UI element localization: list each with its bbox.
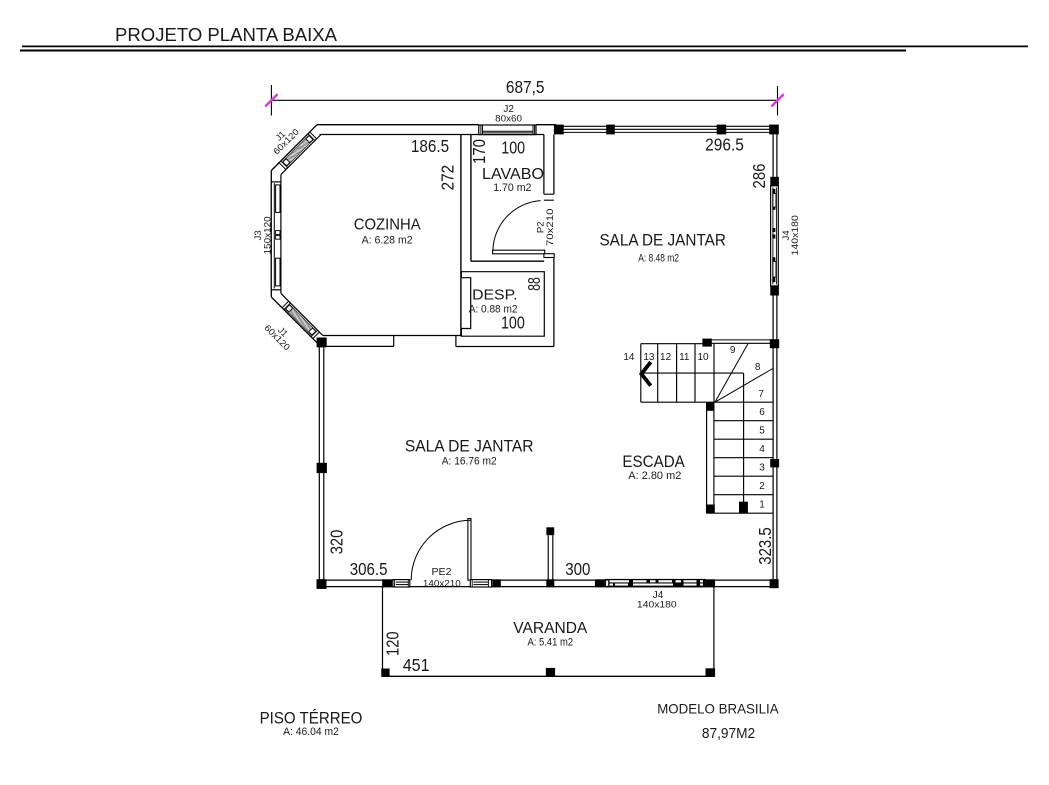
svg-text:120: 120 <box>383 631 403 656</box>
svg-text:A: 16.76 m2: A: 16.76 m2 <box>442 456 497 468</box>
svg-text:320: 320 <box>327 530 347 555</box>
svg-text:1: 1 <box>759 500 765 511</box>
svg-text:VARANDA: VARANDA <box>513 620 587 637</box>
svg-text:12: 12 <box>660 352 672 363</box>
svg-text:1.70 m2: 1.70 m2 <box>493 182 531 194</box>
svg-text:SALA DE JANTAR: SALA DE JANTAR <box>599 231 726 249</box>
svg-text:A: 46.04 m2: A: 46.04 m2 <box>283 726 339 738</box>
svg-text:4: 4 <box>759 444 765 455</box>
svg-text:10: 10 <box>697 352 709 363</box>
svg-text:LAVABO: LAVABO <box>482 166 544 183</box>
svg-text:6: 6 <box>759 407 765 418</box>
svg-text:100: 100 <box>501 137 525 157</box>
svg-text:296.5: 296.5 <box>705 135 744 155</box>
svg-text:PISO TÉRREO: PISO TÉRREO <box>260 708 363 727</box>
svg-text:140x180: 140x180 <box>637 600 677 611</box>
svg-text:186.5: 186.5 <box>411 136 449 156</box>
svg-text:88: 88 <box>524 277 544 291</box>
svg-text:7: 7 <box>758 389 764 400</box>
svg-text:A: 5.41 m2: A: 5.41 m2 <box>528 636 574 648</box>
svg-text:A: 8.48 m2: A: 8.48 m2 <box>638 252 679 264</box>
svg-text:87,97M2: 87,97M2 <box>702 725 755 742</box>
svg-text:A: 2.80 m2: A: 2.80 m2 <box>628 470 681 482</box>
svg-text:PE2: PE2 <box>432 567 452 578</box>
svg-text:DESP.: DESP. <box>472 286 517 303</box>
svg-text:323.5: 323.5 <box>755 527 775 565</box>
svg-text:80x60: 80x60 <box>495 113 522 124</box>
svg-text:170: 170 <box>469 139 489 164</box>
svg-text:11: 11 <box>679 352 690 363</box>
svg-text:306.5: 306.5 <box>350 559 388 579</box>
svg-text:ESCADA: ESCADA <box>622 453 684 471</box>
svg-text:8: 8 <box>755 362 761 373</box>
svg-text:2: 2 <box>759 481 765 492</box>
svg-text:5: 5 <box>759 426 765 437</box>
svg-text:3: 3 <box>759 463 765 474</box>
svg-text:SALA DE JANTAR: SALA DE JANTAR <box>405 438 534 456</box>
svg-text:451: 451 <box>403 655 430 675</box>
svg-text:COZINHA: COZINHA <box>354 217 421 234</box>
svg-text:272: 272 <box>438 165 458 191</box>
svg-text:13: 13 <box>643 352 655 363</box>
svg-text:286: 286 <box>749 164 769 189</box>
svg-text:A: 6.28 m2: A: 6.28 m2 <box>362 235 413 247</box>
svg-text:140x210: 140x210 <box>423 578 461 589</box>
svg-text:9: 9 <box>730 345 736 356</box>
svg-text:PROJETO PLANTA BAIXA: PROJETO PLANTA BAIXA <box>115 24 338 45</box>
svg-text:A: 0.88 m2: A: 0.88 m2 <box>469 304 518 316</box>
svg-text:MODELO BRASILIA: MODELO BRASILIA <box>657 701 779 717</box>
svg-text:300: 300 <box>565 559 590 579</box>
svg-text:687,5: 687,5 <box>506 77 545 97</box>
svg-text:14: 14 <box>623 352 635 363</box>
